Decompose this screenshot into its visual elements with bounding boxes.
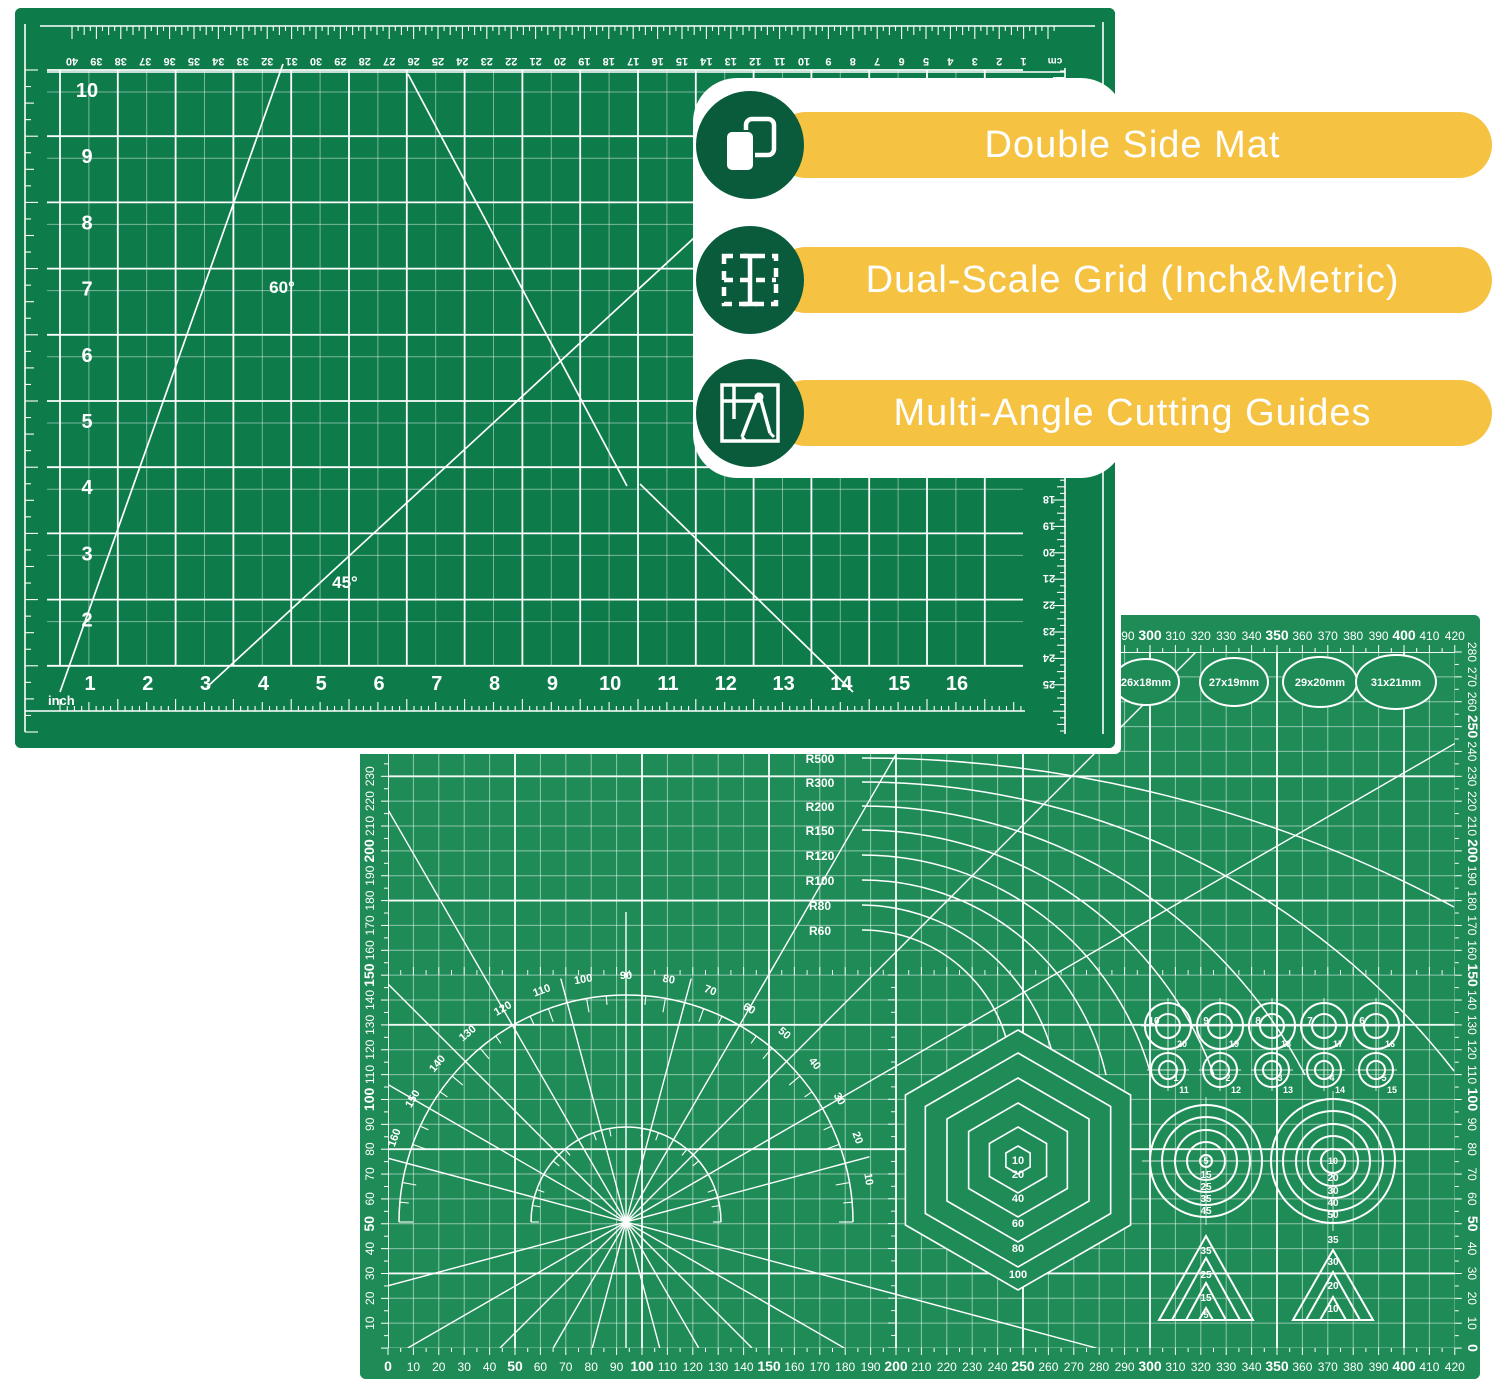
svg-text:6: 6 [373,673,384,695]
svg-text:14: 14 [1335,1085,1345,1095]
svg-text:7: 7 [431,673,442,695]
svg-text:20: 20 [363,1291,377,1305]
svg-text:7: 7 [874,55,880,67]
svg-text:100: 100 [1009,1269,1027,1281]
svg-text:14: 14 [830,673,853,695]
feature-label: Multi-Angle Cutting Guides [894,392,1372,435]
svg-text:60: 60 [1012,1218,1024,1230]
svg-text:30: 30 [458,1360,472,1374]
svg-text:10: 10 [76,80,98,102]
svg-text:100: 100 [1465,1088,1480,1112]
svg-text:290: 290 [1115,629,1135,643]
svg-text:34: 34 [211,55,224,67]
svg-text:21: 21 [1043,572,1055,584]
svg-text:50: 50 [507,1358,523,1374]
svg-text:260: 260 [1038,1360,1058,1374]
svg-text:5: 5 [81,411,92,433]
svg-text:27: 27 [383,55,395,67]
svg-text:17: 17 [627,55,639,67]
svg-text:15: 15 [1200,1293,1212,1304]
svg-text:290: 290 [1115,1360,1135,1374]
svg-text:R80: R80 [809,899,831,913]
svg-text:180: 180 [363,890,377,910]
svg-text:16: 16 [946,673,968,695]
svg-text:36: 36 [163,55,175,67]
svg-text:22: 22 [1043,599,1055,611]
svg-text:130: 130 [708,1360,728,1374]
svg-text:340: 340 [1242,1360,1262,1374]
svg-text:35: 35 [1200,1246,1212,1257]
svg-text:10: 10 [1148,1016,1160,1027]
svg-text:350: 350 [1265,627,1289,643]
svg-text:35: 35 [188,55,200,67]
svg-text:190: 190 [363,865,377,885]
svg-text:12: 12 [749,55,761,67]
svg-text:230: 230 [1465,766,1479,786]
svg-text:32: 32 [261,55,273,67]
svg-text:140: 140 [363,990,377,1010]
svg-text:23: 23 [481,55,493,67]
svg-text:360: 360 [1292,1360,1312,1374]
svg-text:31x21mm: 31x21mm [1371,677,1421,689]
svg-text:50: 50 [1327,1210,1339,1221]
svg-text:400: 400 [1392,627,1416,643]
svg-text:130: 130 [363,1015,377,1035]
svg-text:inch: inch [48,693,75,708]
svg-text:R120: R120 [806,849,835,863]
svg-text:24: 24 [1042,651,1055,663]
svg-text:R200: R200 [806,800,835,814]
svg-text:180: 180 [1465,891,1479,911]
svg-text:0: 0 [1465,1344,1480,1352]
svg-text:8: 8 [1255,1016,1261,1027]
svg-text:280: 280 [1089,1360,1109,1374]
svg-text:400: 400 [1392,1358,1416,1374]
svg-text:25: 25 [1043,678,1055,690]
svg-text:16: 16 [651,55,663,67]
svg-text:100: 100 [630,1358,654,1374]
svg-text:29: 29 [334,55,346,67]
compass-icon [696,359,804,467]
svg-text:300: 300 [1138,627,1162,643]
svg-text:3: 3 [81,543,92,565]
svg-text:360: 360 [1292,629,1312,643]
svg-text:370: 370 [1318,1360,1338,1374]
svg-text:22: 22 [505,55,517,67]
svg-text:190: 190 [861,1360,881,1374]
svg-text:45°: 45° [332,573,358,592]
svg-text:7: 7 [1307,1016,1313,1027]
svg-text:170: 170 [1465,915,1479,935]
svg-text:8: 8 [850,55,856,67]
svg-text:25: 25 [432,55,444,67]
svg-text:60: 60 [1465,1192,1479,1206]
svg-text:20: 20 [1327,1281,1339,1292]
svg-text:31: 31 [285,55,297,67]
svg-text:90: 90 [610,1360,624,1374]
svg-text:10: 10 [363,1316,377,1330]
svg-text:18: 18 [1043,493,1055,505]
svg-text:20: 20 [1177,1039,1187,1049]
svg-text:25: 25 [1200,1182,1212,1193]
svg-text:80: 80 [1012,1243,1024,1255]
grid-icon-glyph [714,244,786,316]
svg-text:110: 110 [363,1065,377,1084]
svg-text:33: 33 [237,55,249,67]
feature-banner-dual-scale: Dual-Scale Grid (Inch&Metric) [773,247,1492,313]
svg-text:100: 100 [361,1088,377,1112]
svg-text:220: 220 [937,1360,957,1374]
svg-text:40: 40 [483,1360,497,1374]
svg-text:19: 19 [1229,1039,1239,1049]
svg-text:37: 37 [139,55,151,67]
svg-text:9: 9 [825,55,831,67]
svg-text:70: 70 [559,1360,573,1374]
svg-text:15: 15 [676,55,688,67]
svg-text:410: 410 [1419,629,1439,643]
svg-text:40: 40 [1465,1242,1479,1256]
svg-text:13: 13 [1283,1085,1293,1095]
compass-icon-glyph [714,377,786,449]
svg-text:90: 90 [620,970,632,982]
svg-text:13: 13 [725,55,737,67]
svg-text:120: 120 [363,1039,377,1059]
svg-text:170: 170 [810,1360,830,1374]
svg-text:230: 230 [962,1360,982,1374]
svg-text:320: 320 [1191,1360,1211,1374]
svg-text:R60: R60 [809,924,831,938]
svg-text:1: 1 [1173,1073,1178,1083]
svg-text:110: 110 [658,1360,677,1374]
svg-text:10: 10 [861,1172,875,1186]
svg-text:80: 80 [363,1142,377,1156]
svg-text:30: 30 [310,55,322,67]
svg-text:350: 350 [1265,1358,1289,1374]
feature-banner-double-side: Double Side Mat [773,112,1492,178]
svg-text:15: 15 [1200,1170,1212,1181]
svg-text:160: 160 [363,940,377,960]
svg-text:70: 70 [1465,1167,1479,1181]
svg-text:310: 310 [1165,629,1185,643]
svg-text:11: 11 [774,55,786,67]
svg-text:370: 370 [1318,629,1338,643]
svg-text:10: 10 [599,673,621,695]
svg-text:14: 14 [699,55,712,67]
svg-text:80: 80 [662,973,676,987]
svg-text:320: 320 [1191,629,1211,643]
svg-text:50: 50 [361,1216,377,1232]
svg-text:20: 20 [1465,1292,1479,1306]
svg-text:60°: 60° [269,278,295,297]
svg-text:R300: R300 [806,776,835,790]
svg-text:4: 4 [81,477,93,499]
svg-text:200: 200 [884,1358,908,1374]
svg-text:9: 9 [1203,1016,1209,1027]
svg-text:60: 60 [363,1192,377,1206]
svg-text:5: 5 [1203,1156,1208,1166]
svg-text:5: 5 [1381,1073,1386,1083]
svg-text:200: 200 [1465,839,1480,863]
svg-text:80: 80 [585,1360,599,1374]
svg-text:80: 80 [1465,1142,1479,1156]
svg-text:150: 150 [361,963,377,987]
svg-text:330: 330 [1216,629,1236,643]
svg-text:250: 250 [1011,1358,1035,1374]
svg-text:90: 90 [363,1117,377,1131]
svg-text:410: 410 [1419,1360,1439,1374]
svg-text:19: 19 [1043,519,1055,531]
svg-text:45: 45 [1200,1206,1212,1217]
svg-text:7: 7 [81,279,92,301]
svg-text:120: 120 [683,1360,703,1374]
svg-text:18: 18 [1281,1039,1291,1049]
svg-text:250: 250 [1465,715,1480,739]
svg-text:35: 35 [1327,1235,1339,1246]
svg-text:2: 2 [1225,1073,1230,1083]
svg-text:cm: cm [1048,55,1063,66]
svg-text:240: 240 [1465,741,1479,761]
grid-icon [696,226,804,334]
svg-text:6: 6 [81,345,92,367]
svg-text:340: 340 [1242,629,1262,643]
copy-icon [696,91,804,199]
svg-text:9: 9 [81,146,92,168]
svg-text:420: 420 [1445,629,1465,643]
svg-text:420: 420 [1445,1360,1465,1374]
svg-text:190: 190 [1465,866,1479,886]
svg-text:110: 110 [1465,1065,1479,1084]
svg-text:40: 40 [1327,1198,1339,1209]
svg-text:50: 50 [1465,1216,1480,1232]
svg-text:20: 20 [1043,546,1055,558]
svg-text:10: 10 [798,55,810,67]
svg-text:27x19mm: 27x19mm [1209,677,1259,689]
feature-banner-multi-angle: Multi-Angle Cutting Guides [773,380,1492,446]
svg-text:280: 280 [1465,642,1479,662]
svg-text:310: 310 [1165,1360,1185,1374]
svg-text:150: 150 [1465,963,1480,987]
svg-text:230: 230 [363,766,377,786]
svg-text:220: 220 [363,791,377,811]
svg-text:30: 30 [1327,1186,1339,1197]
svg-text:5: 5 [316,673,327,695]
feature-label: Dual-Scale Grid (Inch&Metric) [866,259,1400,302]
svg-text:210: 210 [911,1360,931,1374]
svg-text:3: 3 [1277,1073,1282,1083]
svg-text:90: 90 [1465,1118,1479,1132]
svg-text:2: 2 [142,673,153,695]
svg-text:120: 120 [1465,1040,1479,1060]
svg-text:70: 70 [363,1167,377,1181]
svg-text:21: 21 [529,55,541,67]
svg-text:5: 5 [923,55,929,67]
svg-text:4: 4 [258,673,270,695]
svg-text:390: 390 [1369,1360,1389,1374]
svg-text:160: 160 [784,1360,804,1374]
svg-text:140: 140 [1465,990,1479,1010]
svg-text:R100: R100 [806,874,835,888]
svg-text:160: 160 [1465,940,1479,960]
product-infographic: 1801701601501401301201101009080706050403… [0,0,1500,1379]
svg-text:170: 170 [363,915,377,935]
svg-text:35: 35 [1200,1194,1212,1205]
svg-text:1: 1 [84,673,95,695]
svg-text:23: 23 [1043,625,1055,637]
svg-text:1: 1 [1021,55,1027,67]
svg-text:10: 10 [1328,1156,1338,1166]
svg-text:4: 4 [1329,1073,1334,1083]
feature-label: Double Side Mat [985,124,1281,167]
svg-text:390: 390 [1369,629,1389,643]
svg-text:16: 16 [1385,1039,1395,1049]
svg-text:240: 240 [988,1360,1008,1374]
svg-text:R150: R150 [806,824,835,838]
svg-text:9: 9 [547,673,558,695]
svg-text:220: 220 [1465,791,1479,811]
svg-text:60: 60 [534,1360,548,1374]
svg-text:4: 4 [946,55,953,67]
svg-text:3: 3 [972,55,978,67]
svg-text:5: 5 [1203,1310,1208,1320]
svg-text:15: 15 [888,673,910,695]
svg-text:270: 270 [1064,1360,1084,1374]
svg-text:40: 40 [1012,1193,1024,1205]
svg-text:10: 10 [1465,1316,1479,1330]
svg-text:6: 6 [899,55,905,67]
svg-text:20: 20 [1327,1173,1339,1184]
svg-text:210: 210 [1465,816,1479,836]
svg-text:28: 28 [359,55,371,67]
svg-text:10: 10 [407,1360,421,1374]
svg-text:20: 20 [554,55,566,67]
svg-text:6: 6 [1359,1016,1365,1027]
svg-text:260: 260 [1465,692,1479,712]
svg-text:15: 15 [1387,1085,1397,1095]
svg-text:17: 17 [1333,1039,1343,1049]
svg-text:140: 140 [734,1360,754,1374]
svg-text:40: 40 [66,55,78,67]
svg-text:30: 30 [1465,1267,1479,1281]
copy-icon-glyph [714,109,786,181]
svg-text:10: 10 [1012,1155,1024,1167]
svg-text:0: 0 [384,1358,392,1374]
svg-text:11: 11 [1179,1085,1189,1095]
svg-text:300: 300 [1138,1358,1162,1374]
svg-text:25: 25 [1200,1270,1212,1281]
svg-text:210: 210 [363,816,377,836]
svg-text:270: 270 [1465,667,1479,687]
svg-text:R500: R500 [806,752,835,766]
svg-text:38: 38 [115,55,127,67]
svg-text:200: 200 [361,839,377,863]
svg-text:13: 13 [772,673,794,695]
svg-text:330: 330 [1216,1360,1236,1374]
svg-text:2: 2 [996,55,1002,67]
svg-text:20: 20 [1012,1169,1024,1181]
svg-text:12: 12 [1231,1085,1241,1095]
svg-text:29x20mm: 29x20mm [1295,677,1345,689]
svg-text:8: 8 [81,212,92,234]
svg-text:20: 20 [432,1360,446,1374]
svg-text:11: 11 [657,673,678,695]
svg-text:26x18mm: 26x18mm [1121,677,1171,689]
svg-text:39: 39 [90,55,102,67]
svg-text:8: 8 [489,673,500,695]
svg-text:30: 30 [1327,1257,1339,1268]
svg-text:180: 180 [835,1360,855,1374]
svg-text:130: 130 [1465,1015,1479,1035]
svg-text:10: 10 [1327,1304,1339,1315]
svg-text:18: 18 [603,55,615,67]
svg-text:19: 19 [578,55,590,67]
svg-text:150: 150 [757,1358,781,1374]
svg-text:380: 380 [1343,1360,1363,1374]
svg-text:30: 30 [363,1266,377,1280]
svg-text:26: 26 [407,55,419,67]
svg-text:40: 40 [363,1242,377,1256]
svg-text:24: 24 [455,55,468,67]
svg-text:12: 12 [715,673,737,695]
svg-text:380: 380 [1343,629,1363,643]
